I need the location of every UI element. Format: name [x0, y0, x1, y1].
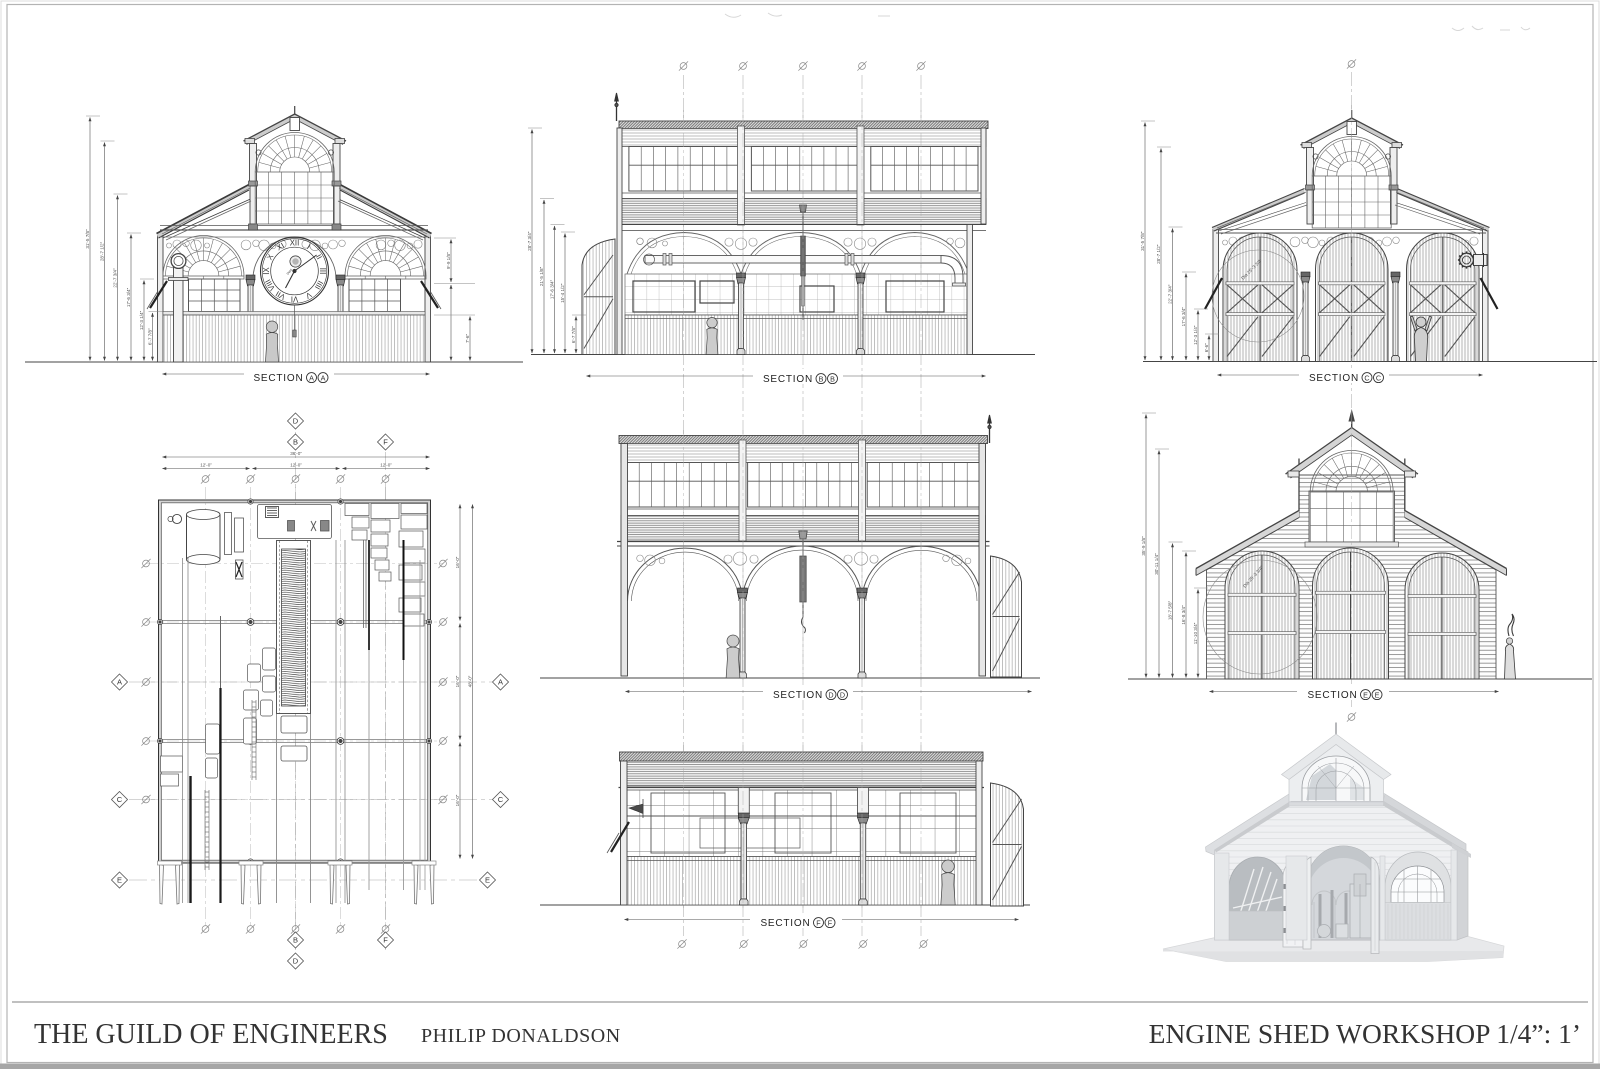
- svg-text:12'-3 1/4”: 12'-3 1/4”: [1193, 325, 1198, 345]
- svg-text:E: E: [1363, 691, 1368, 700]
- svg-text:6'-7 7/8”: 6'-7 7/8”: [147, 328, 152, 345]
- svg-text:16'-0”: 16'-0”: [455, 675, 460, 687]
- svg-text:22'-7 3/4”: 22'-7 3/4”: [1167, 284, 1172, 304]
- svg-text:E: E: [117, 876, 122, 885]
- svg-text:31'-5 7/8”: 31'-5 7/8”: [1140, 231, 1145, 251]
- svg-text:16'-8 3/4”: 16'-8 3/4”: [1181, 605, 1186, 625]
- svg-text:B: B: [819, 375, 824, 384]
- svg-text:30'-11 1/4”: 30'-11 1/4”: [1154, 553, 1159, 575]
- svg-text:A: A: [117, 678, 122, 687]
- svg-text:16'-0”: 16'-0”: [455, 556, 460, 568]
- svg-text:IX: IX: [262, 267, 271, 275]
- svg-text:12'-3 1/4”: 12'-3 1/4”: [139, 310, 144, 330]
- svg-text:E: E: [1375, 691, 1380, 700]
- svg-text:17'-6 3/4”: 17'-6 3/4”: [549, 279, 554, 299]
- svg-text:B: B: [293, 438, 298, 447]
- svg-text:21'-5 1/8”: 21'-5 1/8”: [539, 266, 544, 286]
- svg-text:18'-7 5/8”: 18'-7 5/8”: [1167, 600, 1172, 620]
- svg-text:9'-9 1/8”: 9'-9 1/8”: [446, 252, 451, 269]
- svg-text:F: F: [828, 919, 833, 928]
- svg-text:D: D: [293, 417, 299, 426]
- svg-text:C: C: [117, 795, 123, 804]
- svg-text:III: III: [318, 268, 327, 275]
- svg-text:28'-7 1/2”: 28'-7 1/2”: [1156, 244, 1161, 264]
- svg-text:SECTION: SECTION: [763, 374, 813, 385]
- svg-text:F: F: [383, 438, 388, 447]
- svg-text:SECTION: SECTION: [1307, 690, 1357, 701]
- svg-text:A: A: [498, 678, 503, 687]
- svg-text:F: F: [383, 936, 388, 945]
- svg-text:D: D: [828, 691, 833, 700]
- svg-text:12'-0”: 12'-0”: [380, 463, 392, 468]
- svg-text:7'-6”: 7'-6”: [465, 334, 470, 344]
- svg-text:48'-0”: 48'-0”: [467, 675, 472, 687]
- svg-text:6'-7 7/8”: 6'-7 7/8”: [571, 326, 576, 343]
- svg-text:17'-6 3/4”: 17'-6 3/4”: [126, 287, 131, 307]
- svg-text:SECTION: SECTION: [760, 918, 810, 929]
- svg-text:A: A: [321, 374, 326, 383]
- svg-text:VI: VI: [291, 295, 298, 304]
- svg-text:PHILIP DONALDSON: PHILIP DONALDSON: [421, 1025, 621, 1047]
- svg-text:E: E: [485, 876, 490, 885]
- svg-text:22'-7 3/4”: 22'-7 3/4”: [112, 268, 117, 288]
- svg-text:16'-0”: 16'-0”: [455, 794, 460, 806]
- svg-text:35'-9 1/8”: 35'-9 1/8”: [1141, 536, 1146, 556]
- svg-text:28'-7 3/4”: 28'-7 3/4”: [527, 231, 532, 251]
- svg-text:12'-0”: 12'-0”: [200, 463, 212, 468]
- svg-text:D: D: [840, 691, 845, 700]
- svg-text:36'-0”: 36'-0”: [290, 451, 302, 456]
- svg-text:ENGINE SHED WORKSHOP 1/4”: 1’: ENGINE SHED WORKSHOP 1/4”: 1’: [1149, 1018, 1581, 1049]
- svg-text:F: F: [816, 919, 821, 928]
- svg-text:XII: XII: [290, 238, 300, 247]
- svg-text:D: D: [293, 957, 299, 966]
- svg-text:11'-10 3/4”: 11'-10 3/4”: [1193, 622, 1198, 644]
- svg-text:B: B: [830, 375, 835, 384]
- svg-text:SECTION: SECTION: [1309, 373, 1359, 384]
- svg-text:B: B: [293, 936, 298, 945]
- svg-text:6'-6”: 6'-6”: [1204, 343, 1209, 353]
- svg-text:THE GUILD OF ENGINEERS: THE GUILD OF ENGINEERS: [34, 1019, 388, 1050]
- svg-text:SECTION: SECTION: [773, 690, 823, 701]
- svg-text:A: A: [309, 374, 314, 383]
- svg-text:SECTION: SECTION: [253, 373, 303, 384]
- svg-text:C: C: [498, 795, 504, 804]
- svg-text:17'-6 3/4”: 17'-6 3/4”: [1181, 307, 1186, 327]
- svg-text:C: C: [1364, 374, 1369, 383]
- svg-text:12'-0”: 12'-0”: [290, 463, 302, 468]
- svg-text:28'-7 1/2”: 28'-7 1/2”: [99, 241, 104, 261]
- svg-text:C: C: [1376, 374, 1381, 383]
- svg-text:15'-4 1/2”: 15'-4 1/2”: [560, 283, 565, 303]
- svg-text:31'-5 7/8”: 31'-5 7/8”: [85, 229, 90, 249]
